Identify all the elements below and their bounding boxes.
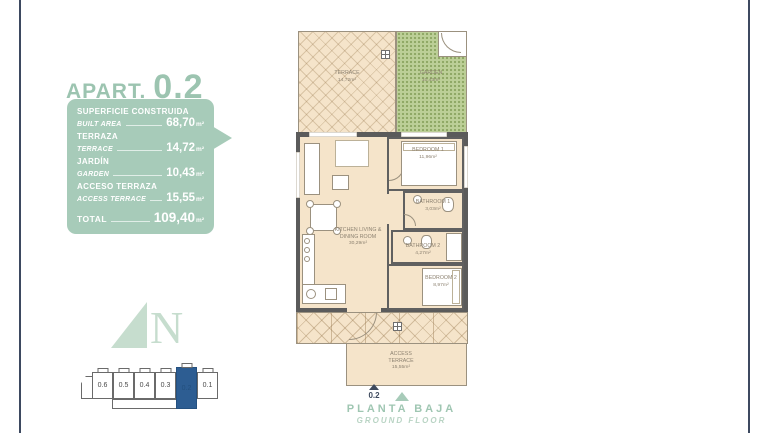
keyplan-unit-0-5: 0.5 — [113, 372, 134, 399]
room-area: 3,03m² — [425, 205, 440, 211]
room-area: 14,72m² — [338, 76, 356, 82]
right-rule-line — [748, 0, 750, 433]
garden-label: GARDEN 10,43m² — [394, 69, 468, 82]
drain-symbol — [393, 322, 402, 331]
leader-line — [113, 175, 162, 176]
unit-label: 0.2 — [182, 385, 192, 392]
room-name: BEDROOM 1 — [412, 146, 444, 152]
label-en: ACCESS TERRACE — [77, 196, 146, 203]
label-es: JARDÍN — [77, 157, 204, 167]
info-row-total: TOTAL 109,40 m² — [77, 210, 204, 225]
coffee-table — [332, 175, 349, 190]
access-terrace-band — [296, 312, 468, 344]
area-value: 68,70 — [166, 117, 195, 129]
notch — [139, 368, 150, 373]
room-area: 4,27m² — [415, 249, 430, 255]
floor-name-en: GROUND FLOOR — [330, 416, 473, 425]
cooktop-burner — [304, 247, 310, 253]
notch — [202, 368, 213, 373]
room-name: BATHROOM 2 — [406, 242, 440, 248]
keyplan-unit-0-6: 0.6 — [92, 372, 113, 399]
total-unit: m² — [196, 217, 204, 224]
dining-table — [310, 204, 337, 231]
room-area: 8,97m² — [433, 281, 448, 287]
keyplan-lower-band — [112, 399, 186, 409]
leader-line — [117, 150, 162, 151]
rug — [335, 140, 369, 167]
notch — [160, 368, 171, 373]
room-name: GARDEN — [420, 69, 443, 75]
bedroom2-label: BEDROOM 2 8,97m² — [404, 274, 478, 287]
info-row-garden: JARDÍN GARDEN 10,43 m² — [77, 157, 204, 179]
notch — [118, 368, 129, 373]
room-name: BATHROOM 1 — [416, 198, 450, 204]
arrow-right-icon — [212, 126, 232, 150]
chair — [333, 200, 341, 208]
terrace-area — [298, 31, 396, 134]
label-es: TERRAZA — [77, 132, 204, 142]
room-name: KITCHEN LIVING & DINING ROOM — [335, 226, 382, 239]
kitchen-appliance — [325, 288, 337, 300]
info-row-access-terrace: ACCESO TERRAZA ACCESS TERRACE 15,55 m² — [77, 182, 204, 204]
keyplan-unit-0-2-highlighted: 0.2 — [176, 367, 197, 409]
area-value: 14,72 — [166, 142, 195, 154]
info-row-built-area: SUPERFICIE CONSTRUIDA BUILT AREA 68,70 m… — [77, 107, 204, 129]
room-name: BEDROOM 2 — [425, 274, 457, 280]
north-letter: N — [150, 302, 183, 352]
terrace-label: TERRACE 14,72m² — [310, 69, 384, 82]
unit-label: 0.6 — [98, 382, 108, 389]
unit-label: 0.3 — [161, 382, 171, 389]
label-es: SUPERFICIE CONSTRUIDA — [77, 107, 204, 117]
cooktop-burner — [304, 256, 310, 262]
bedroom1-label: BEDROOM 1 11,96m² — [391, 146, 465, 159]
bathroom2-label: BATHROOM 2 4,27m² — [386, 242, 460, 255]
access-terrace-label: ACCESS TERRACE 15,55m² — [377, 350, 424, 370]
room-area: 10,43m² — [422, 76, 440, 82]
plan-sheet: APART. 0.2 SUPERFICIE CONSTRUIDA BUILT A… — [0, 0, 770, 433]
label-en: GARDEN — [77, 171, 109, 178]
leader-line — [126, 125, 163, 126]
kitchen-sink — [306, 289, 316, 299]
unit-label: 0.4 — [140, 382, 150, 389]
keyplan-unit-0-3: 0.3 — [155, 372, 176, 399]
room-name: TERRACE — [334, 69, 359, 75]
floor-plan: TERRACE 14,72m² GARDEN 10,43m² BEDROOM 1… — [295, 28, 478, 408]
room-name: ACCESS TERRACE — [388, 350, 413, 363]
area-unit: m² — [196, 146, 204, 153]
north-compass-icon: N — [103, 298, 203, 352]
label-en: TERRACE — [77, 146, 113, 153]
bathroom1-label: BATHROOM 1 3,03m² — [396, 198, 470, 211]
kitchen-living-label: KITCHEN LIVING & DINING ROOM 30,29m² — [334, 226, 381, 246]
room-area: 11,96m² — [419, 153, 437, 159]
keyplan-unit-0-4: 0.4 — [134, 372, 155, 399]
total-label: TOTAL — [77, 214, 107, 224]
area-unit: m² — [196, 196, 204, 203]
drain-symbol — [381, 50, 390, 59]
footer-triangle-icon — [395, 392, 409, 401]
terrace-slider-window — [309, 132, 357, 137]
living-window — [296, 152, 300, 198]
area-unit: m² — [196, 171, 204, 178]
area-value: 15,55 — [166, 192, 195, 204]
keyplan-unit-0-1: 0.1 — [197, 372, 218, 399]
leader-line — [150, 200, 162, 201]
info-row-terrace: TERRAZA TERRACE 14,72 m² — [77, 132, 204, 154]
room-area: 15,55m² — [392, 364, 410, 370]
leader-line — [111, 221, 150, 222]
hall-opening — [387, 194, 389, 224]
total-value: 109,40 — [154, 210, 195, 225]
floor-name-es: PLANTA BAJA — [330, 403, 473, 415]
left-rule-line — [19, 0, 21, 433]
entrance-triangle-icon — [369, 384, 379, 390]
room-area: 30,29m² — [349, 240, 367, 246]
areas-info-box: SUPERFICIE CONSTRUIDA BUILT AREA 68,70 m… — [67, 99, 214, 234]
floor-footer: PLANTA BAJA GROUND FLOOR — [330, 392, 473, 425]
notch — [97, 368, 108, 373]
area-value: 10,43 — [166, 167, 195, 179]
label-es: ACCESO TERRAZA — [77, 182, 204, 192]
label-en: BUILT AREA — [77, 121, 122, 128]
notch — [181, 363, 192, 368]
unit-label: 0.1 — [203, 382, 213, 389]
area-unit: m² — [196, 121, 204, 128]
cooktop-burner — [304, 238, 310, 244]
sofa — [304, 143, 320, 195]
unit-label: 0.5 — [119, 382, 129, 389]
building-key-plan: 0.6 0.5 0.4 0.3 0.2 0.1 — [80, 362, 220, 414]
chair — [306, 200, 314, 208]
